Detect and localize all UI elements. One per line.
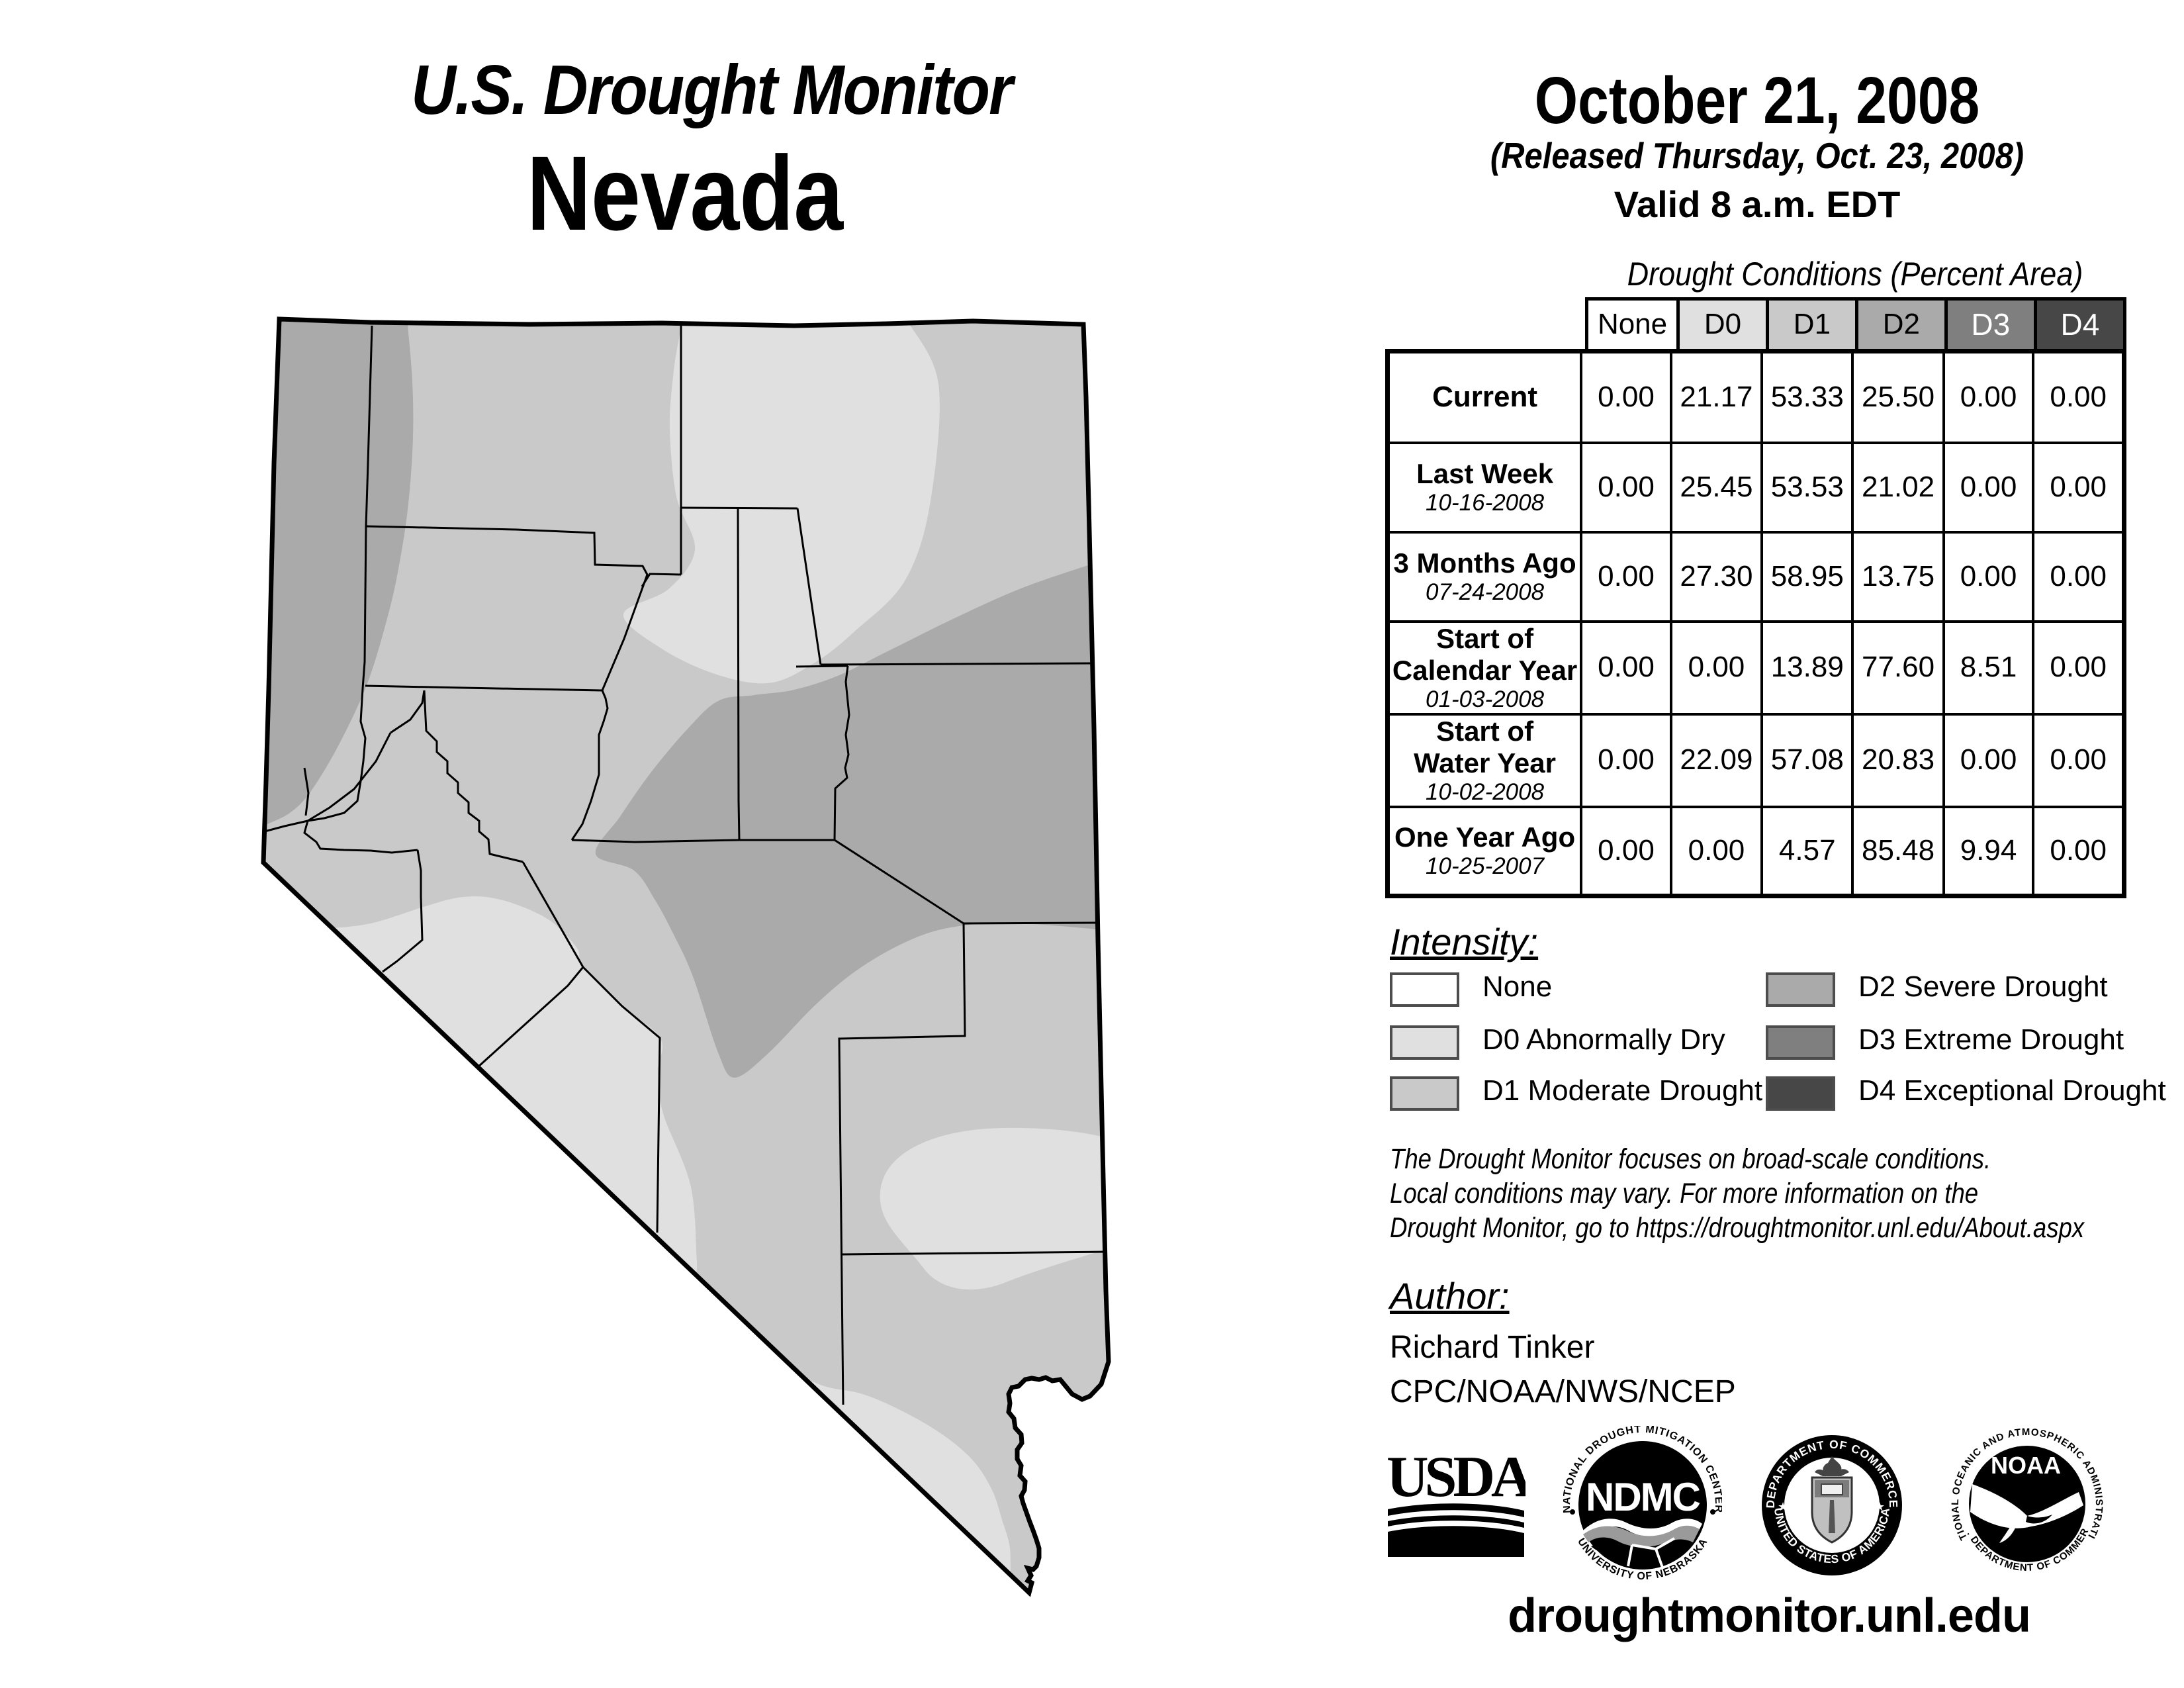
- svg-text:★: ★: [1874, 1500, 1885, 1513]
- svg-text:USDA: USDA: [1387, 1454, 1525, 1509]
- svg-text:NOAA: NOAA: [1991, 1452, 2061, 1479]
- svg-text:★: ★: [1778, 1500, 1788, 1513]
- svg-text:NDMC: NDMC: [1586, 1475, 1700, 1519]
